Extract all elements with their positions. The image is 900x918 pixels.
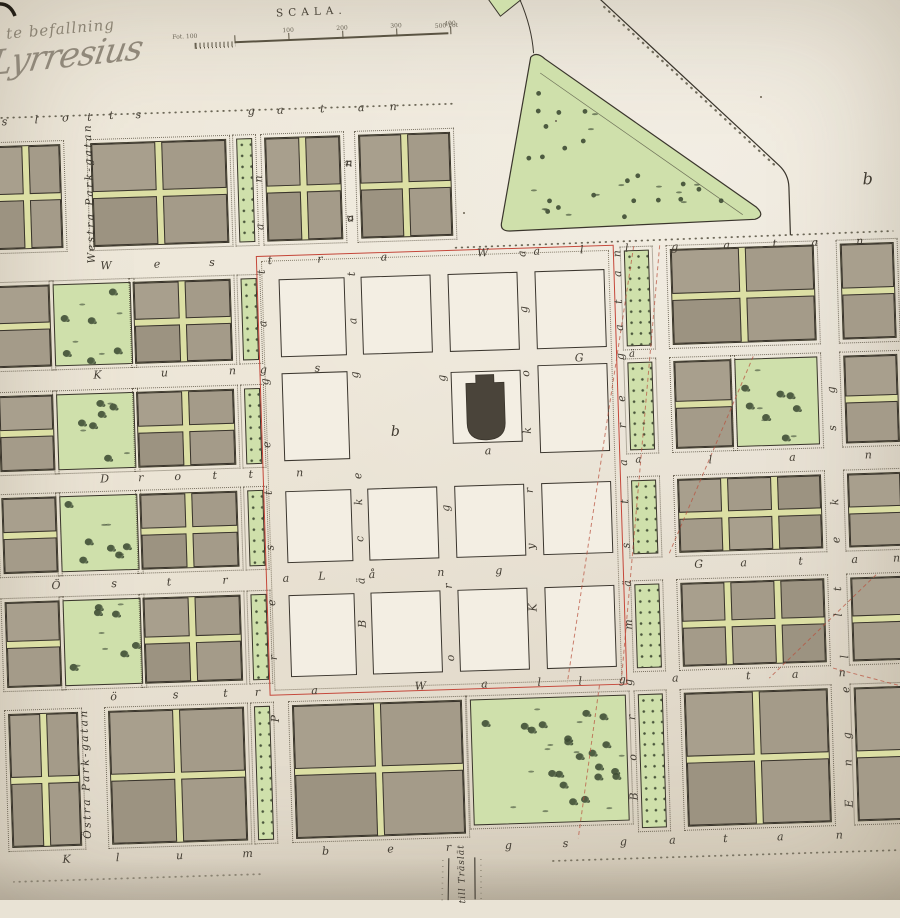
green-wedge <box>488 0 525 17</box>
tree-icon <box>123 543 131 550</box>
tree-icon <box>95 604 103 611</box>
tree-icon <box>115 552 123 559</box>
tree-icon <box>776 390 784 397</box>
street-letter: u <box>176 849 183 862</box>
block-cell <box>841 243 894 289</box>
street-letter: k <box>521 427 534 434</box>
grass-mark <box>543 810 549 812</box>
street-letter: r <box>523 488 536 494</box>
block-cell <box>134 281 180 319</box>
street-letter: e <box>154 258 161 271</box>
tree-icon <box>618 184 624 186</box>
city-block <box>847 472 900 548</box>
street-letter: t <box>723 832 728 845</box>
park-block <box>59 494 139 572</box>
tree-icon <box>622 214 627 219</box>
city-block <box>139 491 239 570</box>
grass-mark <box>757 407 763 409</box>
grass-mark <box>607 807 613 809</box>
city-block <box>108 707 248 845</box>
block-cell <box>295 772 378 838</box>
grass-mark <box>80 429 86 431</box>
street-letter: s <box>209 256 215 269</box>
street-letter: W <box>100 259 112 272</box>
street-letter: e <box>260 441 273 448</box>
block-cell <box>140 493 186 528</box>
street-letter: r <box>616 423 629 429</box>
paper-speck <box>463 212 465 214</box>
block-cell <box>851 577 900 617</box>
street-letter: l <box>708 453 712 466</box>
street-letter: r <box>267 655 280 661</box>
street-letter: t <box>746 669 751 682</box>
tree-icon <box>132 642 140 649</box>
grass-mark <box>101 524 107 526</box>
city-block <box>264 135 343 241</box>
tree-icon <box>96 400 104 407</box>
block-cell <box>191 492 237 527</box>
block-cell <box>0 329 51 368</box>
street-letter: t <box>255 269 268 274</box>
grass-mark <box>74 665 80 667</box>
scale-tick-label: 400 <box>444 20 456 27</box>
esplanade-strip <box>624 250 652 347</box>
street-letter: n <box>856 234 863 247</box>
street-letter: W <box>477 246 489 259</box>
street-letter: a <box>611 270 624 277</box>
tree-icon <box>109 403 117 410</box>
street-letter: a <box>311 684 318 697</box>
street-letter: g <box>348 371 361 378</box>
plot-letter-label: b <box>391 424 400 440</box>
triangle-park-trees <box>524 85 724 222</box>
block-cell <box>361 188 404 237</box>
grass-mark <box>755 369 761 371</box>
street-letter: e <box>615 395 628 402</box>
grass-mark <box>511 806 517 808</box>
block-cell <box>382 770 465 836</box>
park-block <box>53 282 134 366</box>
tree-icon <box>583 710 591 717</box>
street-letter: n <box>296 466 303 479</box>
block-cell <box>676 406 733 448</box>
tree-icon <box>588 128 594 130</box>
esplanade-strip <box>634 583 662 668</box>
street-letter: a <box>851 553 858 566</box>
grass-mark <box>99 631 105 633</box>
block-cell <box>778 514 822 548</box>
block-cell <box>409 187 452 236</box>
block-cell <box>138 431 184 466</box>
tree-icon <box>562 146 567 151</box>
city-block <box>5 600 63 688</box>
city-block <box>0 144 63 250</box>
block-cell <box>672 298 741 344</box>
street-letter: a <box>346 318 359 325</box>
street-letter: r <box>222 574 228 587</box>
block-cell <box>267 192 302 241</box>
street-letter: n <box>252 175 265 182</box>
street-letter: m <box>242 847 253 860</box>
street-letter: Ö <box>51 579 60 592</box>
block-cell <box>265 138 300 187</box>
block-cell <box>687 761 757 826</box>
street-letter: a <box>777 830 784 843</box>
street-letter: o <box>62 111 69 124</box>
tree-icon <box>545 209 550 214</box>
tree-icon <box>539 721 547 728</box>
tree-icon <box>602 741 610 748</box>
street-letter: s <box>826 425 839 431</box>
tree-icon <box>566 214 572 216</box>
tree-icon <box>592 113 598 115</box>
tree-icon <box>594 194 600 196</box>
street-letter: r <box>255 686 261 699</box>
street-letter: G <box>575 351 584 364</box>
block-cell <box>685 692 755 757</box>
block-cell <box>853 621 900 661</box>
tree-icon <box>569 799 577 806</box>
block-cell <box>844 355 897 397</box>
block-cell <box>189 430 235 465</box>
street-letter: a <box>515 250 528 257</box>
street-letter: ö <box>110 690 117 703</box>
tree-icon <box>540 154 545 159</box>
scale-left-label: Fot. 100 <box>172 33 197 41</box>
scale-tick-label: 100 <box>282 27 294 34</box>
tree-icon <box>543 209 549 211</box>
street-letter: B <box>627 792 640 800</box>
block-cell <box>380 701 463 767</box>
tree-icon <box>531 189 537 191</box>
park-block <box>470 695 630 826</box>
street-letter: l <box>116 851 120 864</box>
street-letter: n <box>836 828 843 841</box>
grass-mark <box>73 341 79 343</box>
block-cell <box>781 623 826 662</box>
block-cell <box>759 689 829 754</box>
street-letter: g <box>248 104 255 117</box>
tree-icon <box>560 782 568 789</box>
city-block <box>850 576 900 662</box>
street-letter: k <box>352 498 365 505</box>
diagonal-road-edge <box>598 0 791 241</box>
street-letter: u <box>161 366 168 379</box>
street-letter: e <box>839 686 852 693</box>
block-cell <box>359 134 402 183</box>
tree-icon <box>98 411 106 418</box>
block-cell <box>732 625 777 664</box>
scale-tick-label: 200 <box>336 25 348 32</box>
street-letter: k <box>828 498 841 505</box>
plot-letter-label: a <box>635 454 641 465</box>
street-letter: t <box>345 272 358 277</box>
street-letter: s <box>135 108 141 121</box>
street-letter: a <box>617 459 630 466</box>
street-letter: g <box>841 732 854 739</box>
block-cell <box>137 391 183 426</box>
city-block <box>8 712 82 848</box>
tree-icon <box>114 347 122 354</box>
city-block <box>133 279 234 364</box>
block-cell <box>161 140 226 190</box>
grass-mark <box>534 708 540 710</box>
grass-mark <box>619 755 625 757</box>
block-cell <box>846 401 899 443</box>
block-cell <box>0 286 50 325</box>
tree-icon <box>120 650 128 657</box>
block-cell <box>0 146 24 195</box>
street-letter: n <box>841 759 854 766</box>
tree-icon <box>786 392 794 399</box>
street-letter: t <box>798 554 803 567</box>
plot-letter-label: ä <box>629 349 635 360</box>
block-cell <box>674 360 731 402</box>
tree-icon <box>89 423 97 430</box>
street-letter: e <box>829 536 842 543</box>
block-cell <box>849 512 900 547</box>
grass-mark <box>99 353 105 355</box>
street-letter: n <box>893 551 900 564</box>
scale-tick <box>342 31 343 39</box>
grass-mark <box>116 312 122 314</box>
street-letter: n <box>345 156 352 169</box>
street-letter: K <box>93 368 102 381</box>
block-cell <box>7 646 61 687</box>
city-block <box>358 132 453 239</box>
block-cell <box>761 758 831 823</box>
tree-icon <box>792 405 800 412</box>
block-cell <box>9 714 42 778</box>
street-letter: t <box>248 468 253 481</box>
street-letter: n <box>229 364 236 377</box>
tree-icon <box>594 774 602 781</box>
tree-icon <box>548 770 556 777</box>
street-letter: a <box>380 250 387 263</box>
tree-icon <box>782 435 790 442</box>
tree-icon <box>678 197 683 202</box>
paper-speck <box>555 120 557 122</box>
block-cell <box>2 497 56 533</box>
tree-icon <box>564 735 572 742</box>
block-cell <box>407 133 450 182</box>
tree-icon <box>112 611 120 618</box>
block-cell <box>188 390 234 425</box>
paper-speck <box>760 96 762 98</box>
city-block <box>680 578 827 666</box>
block-cell <box>842 293 895 339</box>
street-letter: r <box>138 471 144 484</box>
street-letter: n <box>865 448 872 461</box>
park-block <box>63 598 144 686</box>
street-letter: t <box>268 254 273 267</box>
city-block <box>854 686 900 822</box>
block-cell <box>746 295 815 341</box>
tree-icon <box>746 403 754 410</box>
street-letter: a <box>253 223 266 230</box>
street-letter: P <box>269 715 282 723</box>
city-block <box>90 139 229 247</box>
street-letter: t <box>109 109 114 122</box>
city-block <box>1 496 58 574</box>
tree-icon <box>591 193 596 198</box>
block-cell <box>731 581 776 620</box>
tree-icon <box>526 156 531 161</box>
block-cell <box>0 395 53 431</box>
street-letter: e <box>265 599 278 606</box>
street-letter: l <box>832 613 845 617</box>
street-letter: r <box>317 252 323 265</box>
street-letter: g <box>614 353 627 360</box>
tree-icon <box>109 288 117 295</box>
tree-icon <box>583 109 588 114</box>
tree-icon <box>542 208 548 210</box>
block-cell <box>848 473 900 508</box>
street-letter: e <box>351 472 364 479</box>
tree-icon <box>536 91 541 96</box>
street-letter: a <box>256 320 269 327</box>
grass-mark <box>124 452 130 454</box>
tree-icon <box>595 763 603 770</box>
block-cell <box>727 477 771 511</box>
street-letter: n <box>389 100 396 113</box>
block-cell <box>144 597 190 637</box>
grass-mark <box>118 603 124 605</box>
street-letter: t <box>772 237 777 250</box>
block-cell <box>196 641 242 681</box>
street-letter: l <box>578 674 582 687</box>
street-letter: t <box>320 102 325 115</box>
esplanade-strip <box>638 693 667 828</box>
street-letter: l <box>580 243 584 256</box>
block-cell <box>6 601 60 642</box>
block-cell <box>678 478 722 512</box>
street-letter: a <box>792 668 799 681</box>
street-letter: l <box>34 113 38 126</box>
street-letter: K <box>526 603 539 612</box>
block-cell <box>0 200 25 249</box>
tree-icon <box>87 317 95 324</box>
street-letter: l <box>625 242 629 255</box>
block-cell <box>679 517 723 551</box>
tree-icon <box>556 110 561 115</box>
street-letter: g <box>622 679 635 686</box>
street-letter: a <box>669 834 676 847</box>
esplanade-strip <box>254 706 274 840</box>
tree-icon <box>547 198 552 203</box>
block-cell <box>745 246 814 292</box>
block-cell <box>91 142 156 192</box>
street-letter: b <box>322 844 329 857</box>
block-cell <box>194 596 240 636</box>
tree-icon <box>556 205 561 210</box>
city-block <box>670 244 817 344</box>
street-letter: l <box>537 676 541 689</box>
scale-subdivisions <box>195 41 236 49</box>
street-letter: g <box>495 564 502 577</box>
street-letter: s <box>620 542 633 548</box>
tree-icon <box>741 385 749 392</box>
plot-letter-label: a <box>485 444 492 457</box>
block-cell <box>185 280 231 318</box>
tree-icon <box>719 198 724 203</box>
triangle-park <box>496 48 761 232</box>
block-cell <box>305 136 340 185</box>
street-letter: t <box>223 687 228 700</box>
grass-mark <box>762 419 768 421</box>
street-letter: E <box>843 799 856 807</box>
block-cell <box>780 579 825 618</box>
block-cell <box>28 145 60 194</box>
scale-tick-label: 300 <box>390 22 402 29</box>
tree-icon <box>581 796 589 803</box>
street-letter: m <box>622 619 635 630</box>
block-cell <box>307 190 342 239</box>
frame-corner-mark <box>0 0 40 30</box>
tree-icon <box>635 173 640 178</box>
street-letter: D <box>100 472 109 485</box>
grass-mark <box>79 304 85 306</box>
tree-icon <box>576 753 584 760</box>
block-cell <box>293 704 376 770</box>
street-letter: s <box>111 577 117 590</box>
tree-icon <box>79 556 87 563</box>
street-letter: a <box>723 239 730 252</box>
street-letter: t <box>831 586 844 591</box>
street-letter: s <box>263 545 276 551</box>
grass-mark <box>790 436 796 438</box>
tree-icon <box>85 539 93 546</box>
tree-icon <box>676 191 682 193</box>
block-cell <box>109 710 175 775</box>
tree-icon <box>681 182 686 187</box>
tree-icon <box>536 109 541 114</box>
street-letter: g <box>620 835 627 848</box>
street-letter: r <box>442 583 455 589</box>
street-letter: t <box>212 469 217 482</box>
block-cell <box>683 626 728 665</box>
street-letter: o <box>444 655 457 662</box>
tree-icon <box>528 727 536 734</box>
street-letter: G <box>694 558 703 571</box>
block-cell <box>0 435 54 471</box>
plot-letter-label: b <box>862 169 873 188</box>
street-letter: n <box>610 250 623 257</box>
photographed-map: slottsgatanWestraWallgatanKungsGDrottnla… <box>0 0 900 900</box>
scale-tick <box>234 35 235 43</box>
street-letter: ä <box>621 580 634 587</box>
street-letter: g <box>505 839 512 852</box>
city-block <box>843 354 900 444</box>
block-cell <box>142 533 188 568</box>
street-letter: a <box>282 572 289 585</box>
tree-icon <box>581 139 586 144</box>
tree-icon <box>696 187 701 192</box>
block-cell <box>48 782 81 846</box>
block-cell <box>135 324 181 362</box>
block-cell <box>163 194 228 244</box>
street-letter: t <box>262 490 275 495</box>
tree-icon <box>656 186 662 188</box>
block-cell <box>777 475 821 509</box>
street-letter: g <box>260 363 267 376</box>
block-cell <box>111 779 177 844</box>
park-block <box>56 392 136 470</box>
block-cell <box>186 323 232 361</box>
tree-icon <box>65 500 73 507</box>
tree-icon <box>61 315 69 322</box>
tree-icon <box>656 198 661 203</box>
